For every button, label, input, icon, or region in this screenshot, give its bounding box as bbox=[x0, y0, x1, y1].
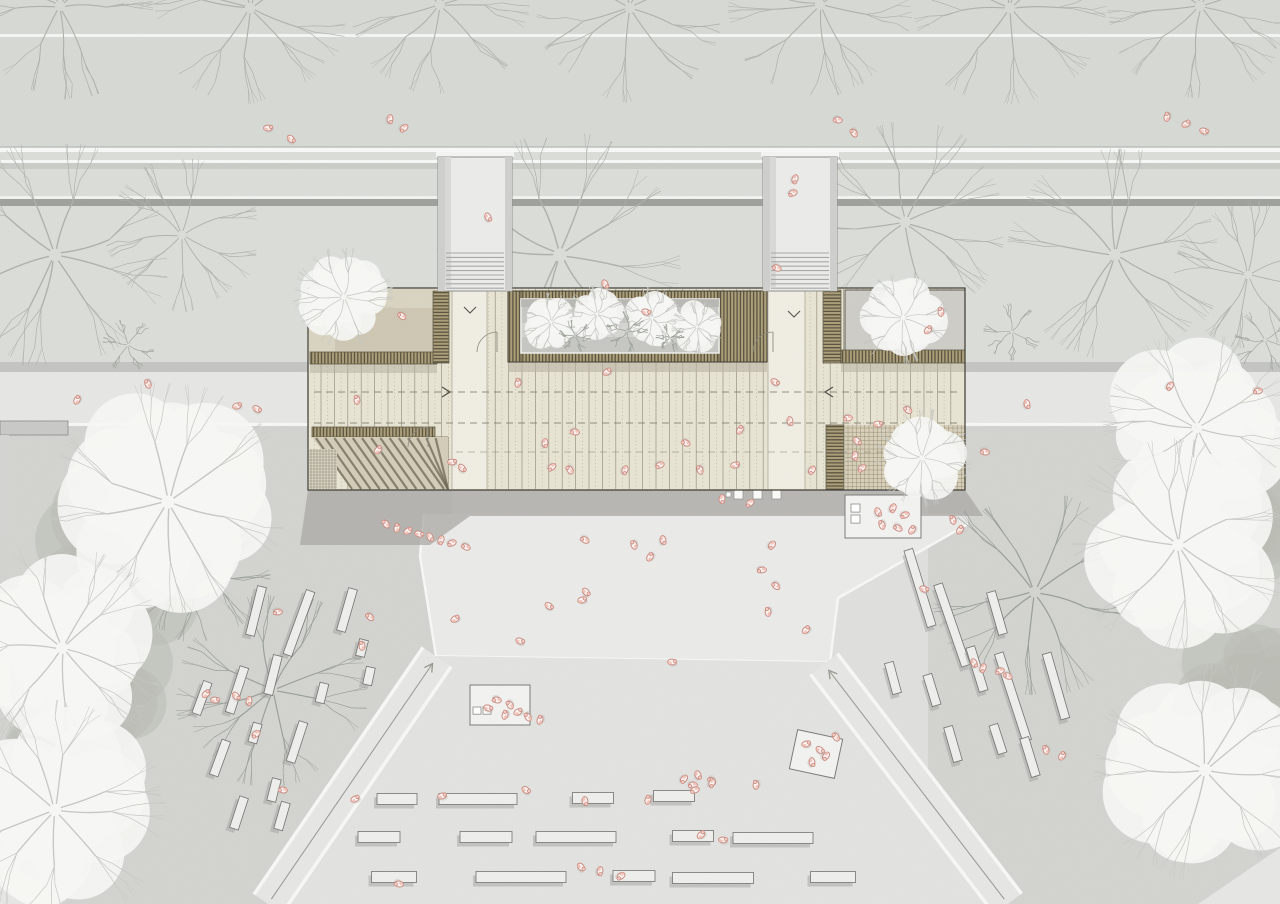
site-plan bbox=[0, 0, 1280, 904]
site-plan-svg bbox=[0, 0, 1280, 904]
paper-grain-overlay bbox=[0, 0, 1280, 904]
grain bbox=[0, 0, 1280, 904]
